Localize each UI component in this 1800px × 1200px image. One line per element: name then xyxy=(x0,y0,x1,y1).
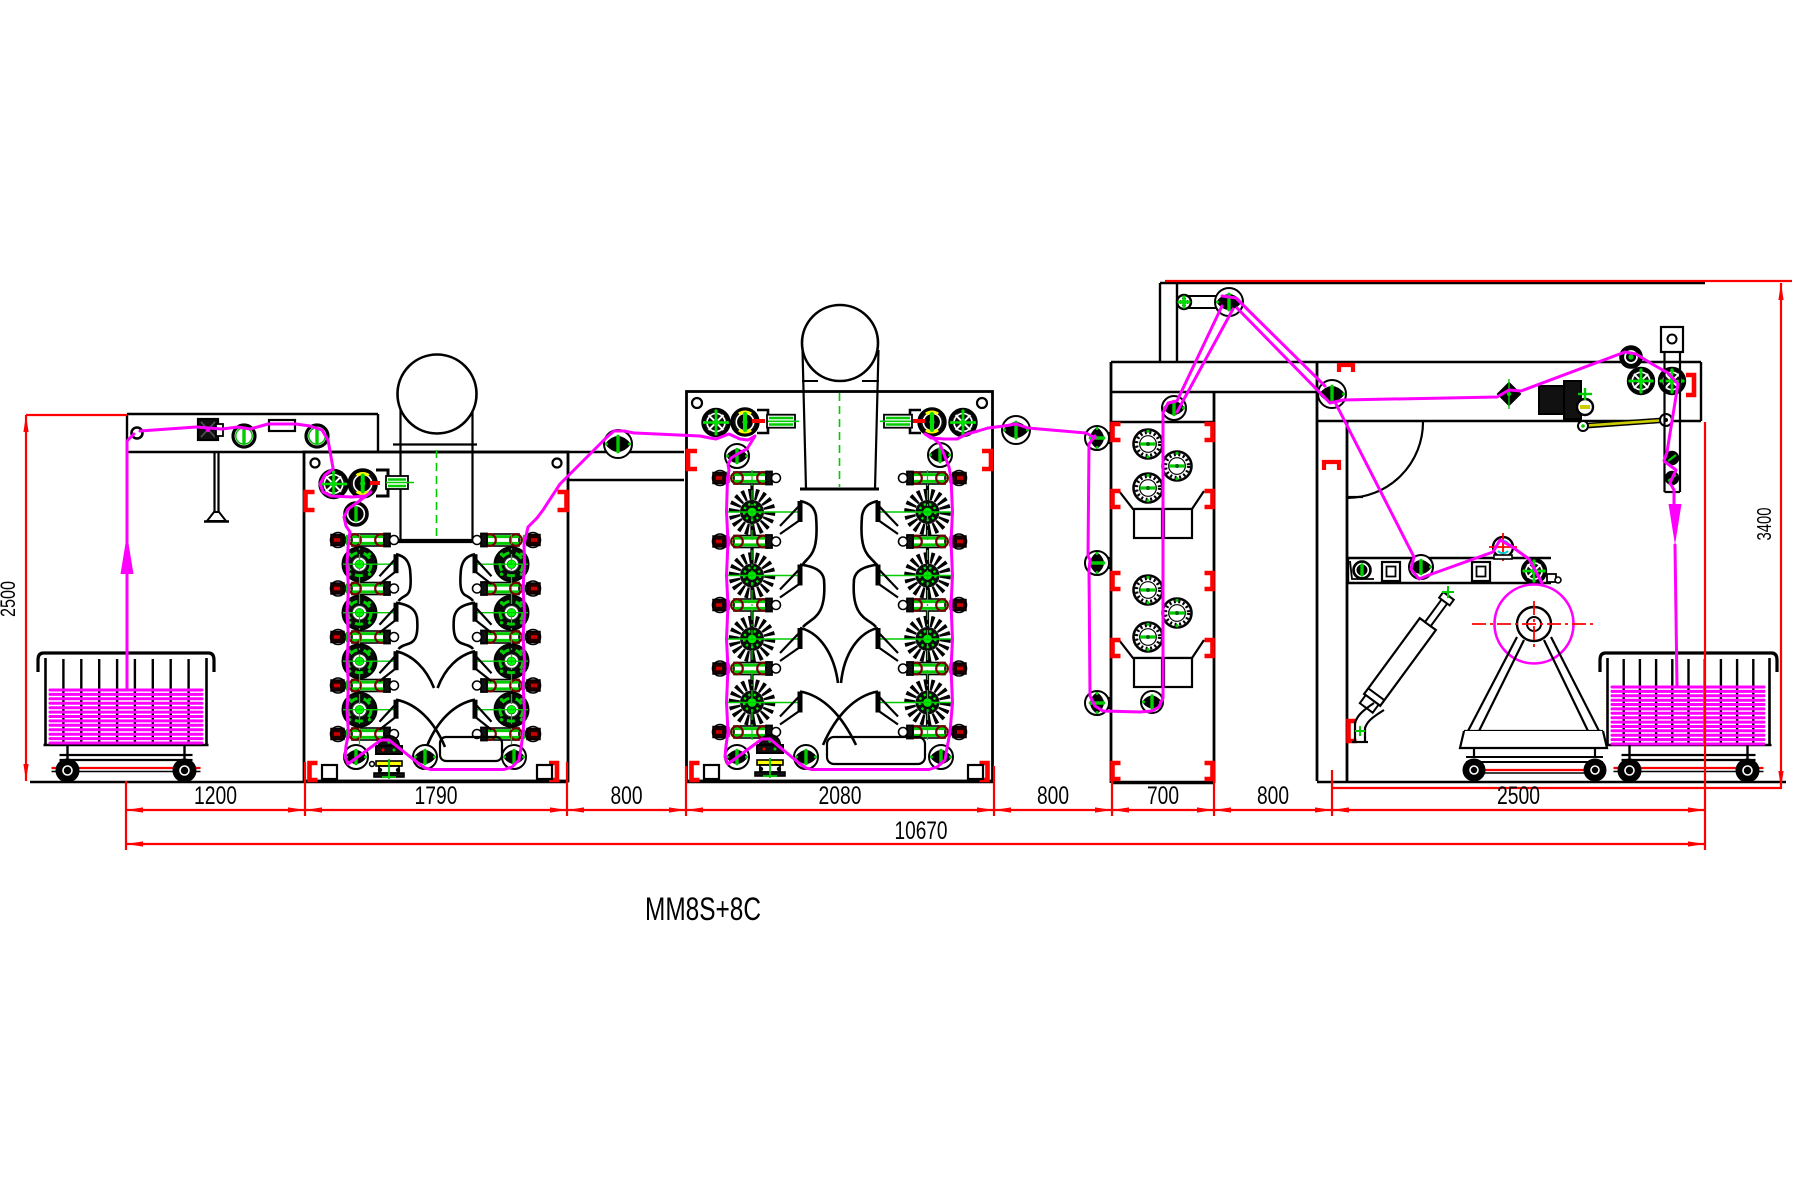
svg-text:2500: 2500 xyxy=(1497,782,1540,810)
svg-text:MM8S+8C: MM8S+8C xyxy=(645,891,761,927)
svg-text:800: 800 xyxy=(611,782,643,810)
svg-text:800: 800 xyxy=(1037,782,1069,810)
svg-text:10670: 10670 xyxy=(895,817,948,845)
svg-text:3400: 3400 xyxy=(1754,508,1776,541)
svg-text:800: 800 xyxy=(1257,782,1289,810)
svg-text:700: 700 xyxy=(1147,782,1179,810)
svg-text:1790: 1790 xyxy=(415,782,458,810)
svg-text:2080: 2080 xyxy=(819,782,862,810)
svg-text:2500: 2500 xyxy=(0,581,20,617)
svg-text:1200: 1200 xyxy=(194,782,237,810)
